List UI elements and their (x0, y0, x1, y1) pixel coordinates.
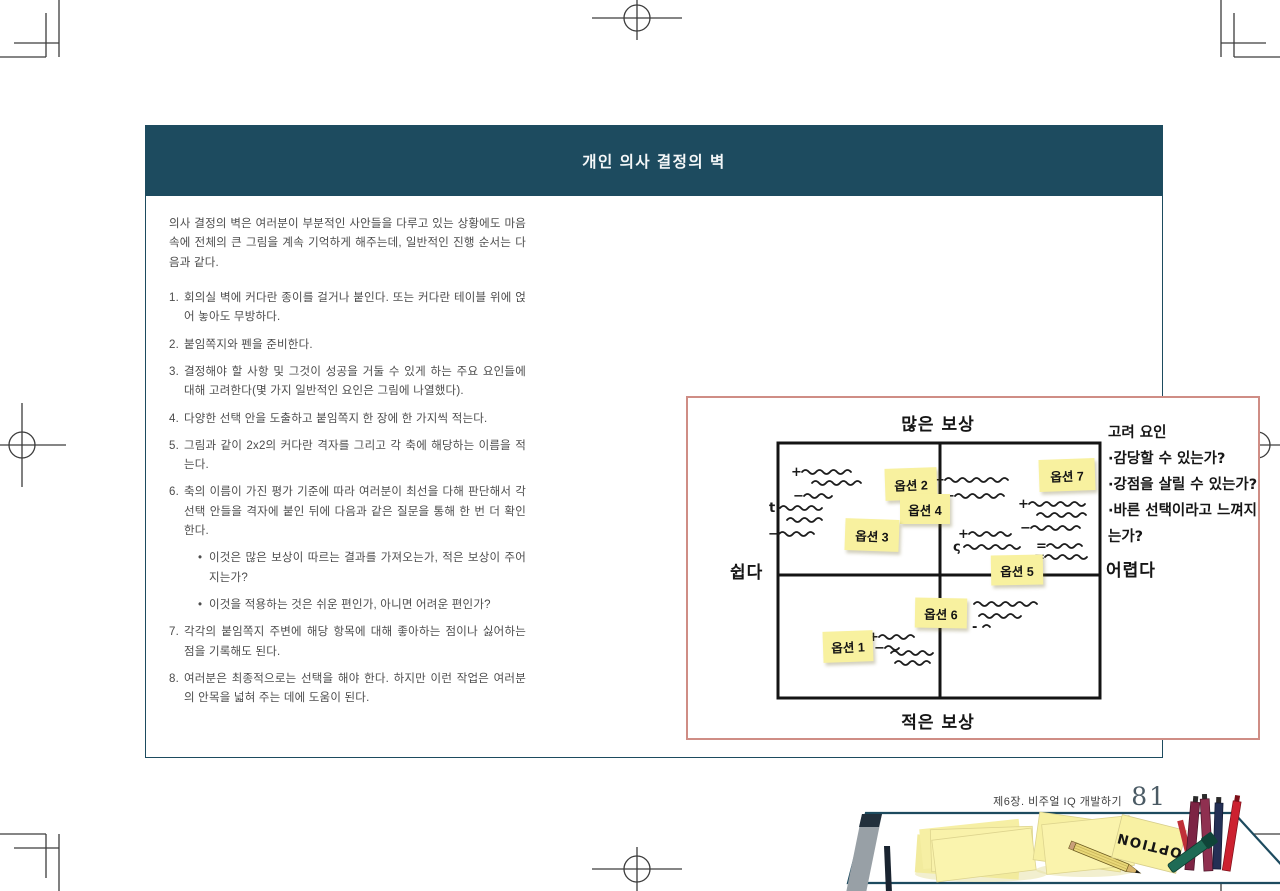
scribble-symbol: + (791, 465, 802, 480)
step-item: 2.붙임쪽지와 펜을 준비한다. (169, 336, 526, 355)
scribble-line (969, 532, 1011, 536)
scribble-symbol: - (972, 620, 977, 635)
scribble-symbol: − (874, 641, 885, 656)
scribble-line (780, 506, 822, 510)
intro-paragraph: 의사 결정의 벽은 여러분이 부분적인 사안들을 다루고 있는 상황에도 마음속… (169, 215, 526, 273)
bullet-dot: • (198, 549, 209, 588)
sticky-note-label: 옵션 1 (831, 636, 865, 656)
scribble-line (1045, 555, 1087, 559)
scribble-line (983, 625, 990, 627)
considerations-block: 고려 요인 ·감당할 수 있는가?·강점을 살릴 수 있는가?·바른 선택이라고… (1108, 420, 1262, 550)
sticky-stack-left (915, 819, 1047, 882)
section-header: 개인 의사 결정의 벽 (146, 126, 1162, 196)
scribble-symbol: + (1018, 497, 1029, 512)
page-number: 81 (1131, 782, 1167, 811)
step-number: 8. (169, 670, 184, 709)
page-footer: 제6장. 비주얼 IQ 개발하기 81 (993, 782, 1167, 811)
axis-label-left: 쉽다 (730, 558, 763, 583)
scribble-line (787, 518, 822, 522)
sticky-note: 옵션 7 (1038, 458, 1095, 492)
scribble-line (1037, 513, 1086, 517)
step-text: 회의실 벽에 커다란 종이를 걸거나 붙인다. 또는 커다란 테이블 위에 얹어… (184, 289, 526, 328)
step-text: 붙임쪽지와 펜을 준비한다. (184, 336, 526, 355)
scribble-line (885, 646, 899, 650)
section-title: 개인 의사 결정의 벽 (582, 150, 726, 172)
content-card: 개인 의사 결정의 벽 의사 결정의 벽은 여러분이 부분적인 사안들을 다루고… (145, 125, 1163, 758)
step-number: 2. (169, 336, 184, 355)
step-bullet: •이것은 많은 보상이 따르는 결과를 가져오는가, 적은 보상이 주어지는가? (198, 549, 526, 588)
scribble-line (895, 661, 930, 665)
consideration-item: ·강점을 살릴 수 있는가? (1108, 472, 1262, 498)
decision-grid-diagram: +−t−+−+−+ς==·-+− 많은 보상 적은 보상 쉽다 어렵다 고려 요… (686, 396, 1260, 740)
sticky-note: 옵션 5 (991, 555, 1044, 586)
sticky-note: 옵션 4 (900, 494, 950, 524)
step-item: 5.그림과 같이 2x2의 커다란 격자를 그리고 각 축에 해당하는 이름을 … (169, 437, 526, 476)
step-item: 1.회의실 벽에 커다란 종이를 걸거나 붙인다. 또는 커다란 테이블 위에 … (169, 289, 526, 328)
book-page: 개인 의사 결정의 벽 의사 결정의 벽은 여러분이 부분적인 사안들을 다루고… (0, 0, 1280, 891)
scribble-line (955, 494, 1004, 498)
step-item: 7.각각의 붙임쪽지 주변에 해당 항목에 대해 좋아하는 점이나 싫어하는 점… (169, 623, 526, 662)
step-text: 다양한 선택 안을 도출하고 붙임쪽지 한 장에 한 가지씩 적는다. (184, 410, 526, 429)
scribble-line (891, 651, 933, 655)
step-number: 4. (169, 410, 184, 429)
scribble-symbol: ς (953, 540, 961, 555)
step-text: 여러분은 최종적으로는 선택을 해야 한다. 하지만 이런 작업은 여러분의 안… (184, 670, 526, 709)
considerations-title: 고려 요인 (1108, 420, 1262, 446)
scribble-line (802, 470, 851, 474)
scribble-line (964, 545, 1020, 549)
scribble-line (1031, 526, 1080, 530)
step-number: 3. (169, 363, 184, 402)
bullet-dot: • (198, 596, 209, 615)
scribble-line (1047, 544, 1082, 548)
bullet-text: 이것을 적용하는 것은 쉬운 편인가, 아니면 어려운 편인가? (209, 596, 526, 615)
axis-label-bottom: 적은 보상 (901, 708, 974, 733)
step-number: 7. (169, 623, 184, 662)
consideration-item: ·감당할 수 있는가? (1108, 446, 1262, 472)
scribble-symbol: − (793, 489, 804, 504)
scribble-line (779, 532, 814, 536)
consideration-item: ·바른 선택이라고 느껴지는가? (1108, 498, 1262, 550)
sticky-note-label: 옵션 7 (1050, 465, 1084, 485)
chapter-label: 제6장. 비주얼 IQ 개발하기 (993, 793, 1122, 809)
scribble-symbol: t (769, 501, 775, 516)
table-leg-cap (859, 814, 882, 827)
sticky-note: 옵션 6 (915, 598, 968, 629)
scribble-symbol: − (1020, 521, 1031, 536)
scribble-line (812, 481, 861, 485)
bullet-text: 이것은 많은 보상이 따르는 결과를 가져오는가, 적은 보상이 주어지는가? (209, 549, 526, 588)
step-text: 축의 이름이 가진 평가 기준에 따라 여러분이 최선을 다해 판단해서 각 선… (184, 483, 526, 541)
step-text: 각각의 붙임쪽지 주변에 해당 항목에 대해 좋아하는 점이나 싫어하는 점을 … (184, 623, 526, 662)
step-item: 8.여러분은 최종적으로는 선택을 해야 한다. 하지만 이런 작업은 여러분의… (169, 670, 526, 709)
axis-label-top: 많은 보상 (901, 410, 974, 435)
step-item: 4.다양한 선택 안을 도출하고 붙임쪽지 한 장에 한 가지씩 적는다. (169, 410, 526, 429)
axis-label-right: 어렵다 (1106, 556, 1156, 581)
step-number: 5. (169, 437, 184, 476)
sticky-note-label: 옵션 3 (855, 525, 889, 545)
step-bullet: •이것을 적용하는 것은 쉬운 편인가, 아니면 어려운 편인가? (198, 596, 526, 615)
scribble-line (1029, 502, 1085, 506)
sticky-note: 옵션 3 (844, 518, 899, 552)
sticky-note-label: 옵션 2 (894, 474, 928, 494)
steps-list: 1.회의실 벽에 커다란 종이를 걸거나 붙인다. 또는 커다란 테이블 위에 … (169, 289, 526, 709)
scribble-line (979, 614, 1021, 618)
step-text: 결정해야 할 사항 및 그것이 성공을 거둘 수 있게 하는 주요 요인들에 대… (184, 363, 526, 402)
sticky-note-label: 옵션 6 (924, 603, 958, 623)
step-number: 6. (169, 483, 184, 615)
sticky-note-label: 옵션 5 (1000, 560, 1034, 580)
scribble-line (804, 494, 832, 498)
considerations-items: ·감당할 수 있는가?·강점을 살릴 수 있는가?·바른 선택이라고 느껴지는가… (1108, 446, 1262, 550)
scribble-symbol: − (768, 527, 779, 542)
step-number: 1. (169, 289, 184, 328)
scribble-line (945, 478, 1008, 482)
scribble-line (974, 602, 1037, 606)
step-item: 3.결정해야 할 사항 및 그것이 성공을 거둘 수 있게 하는 주요 요인들에… (169, 363, 526, 402)
body-text-column: 의사 결정의 벽은 여러분이 부분적인 사안들을 다루고 있는 상황에도 마음속… (169, 215, 526, 717)
sticky-note: 옵션 1 (822, 630, 873, 663)
sticky-note-label: 옵션 4 (908, 500, 941, 519)
scribble-line (879, 635, 914, 639)
step-text: 그림과 같이 2x2의 커다란 격자를 그리고 각 축에 해당하는 이름을 적는… (184, 437, 526, 476)
step-item: 6.축의 이름이 가진 평가 기준에 따라 여러분이 최선을 다해 판단해서 각… (169, 483, 526, 615)
